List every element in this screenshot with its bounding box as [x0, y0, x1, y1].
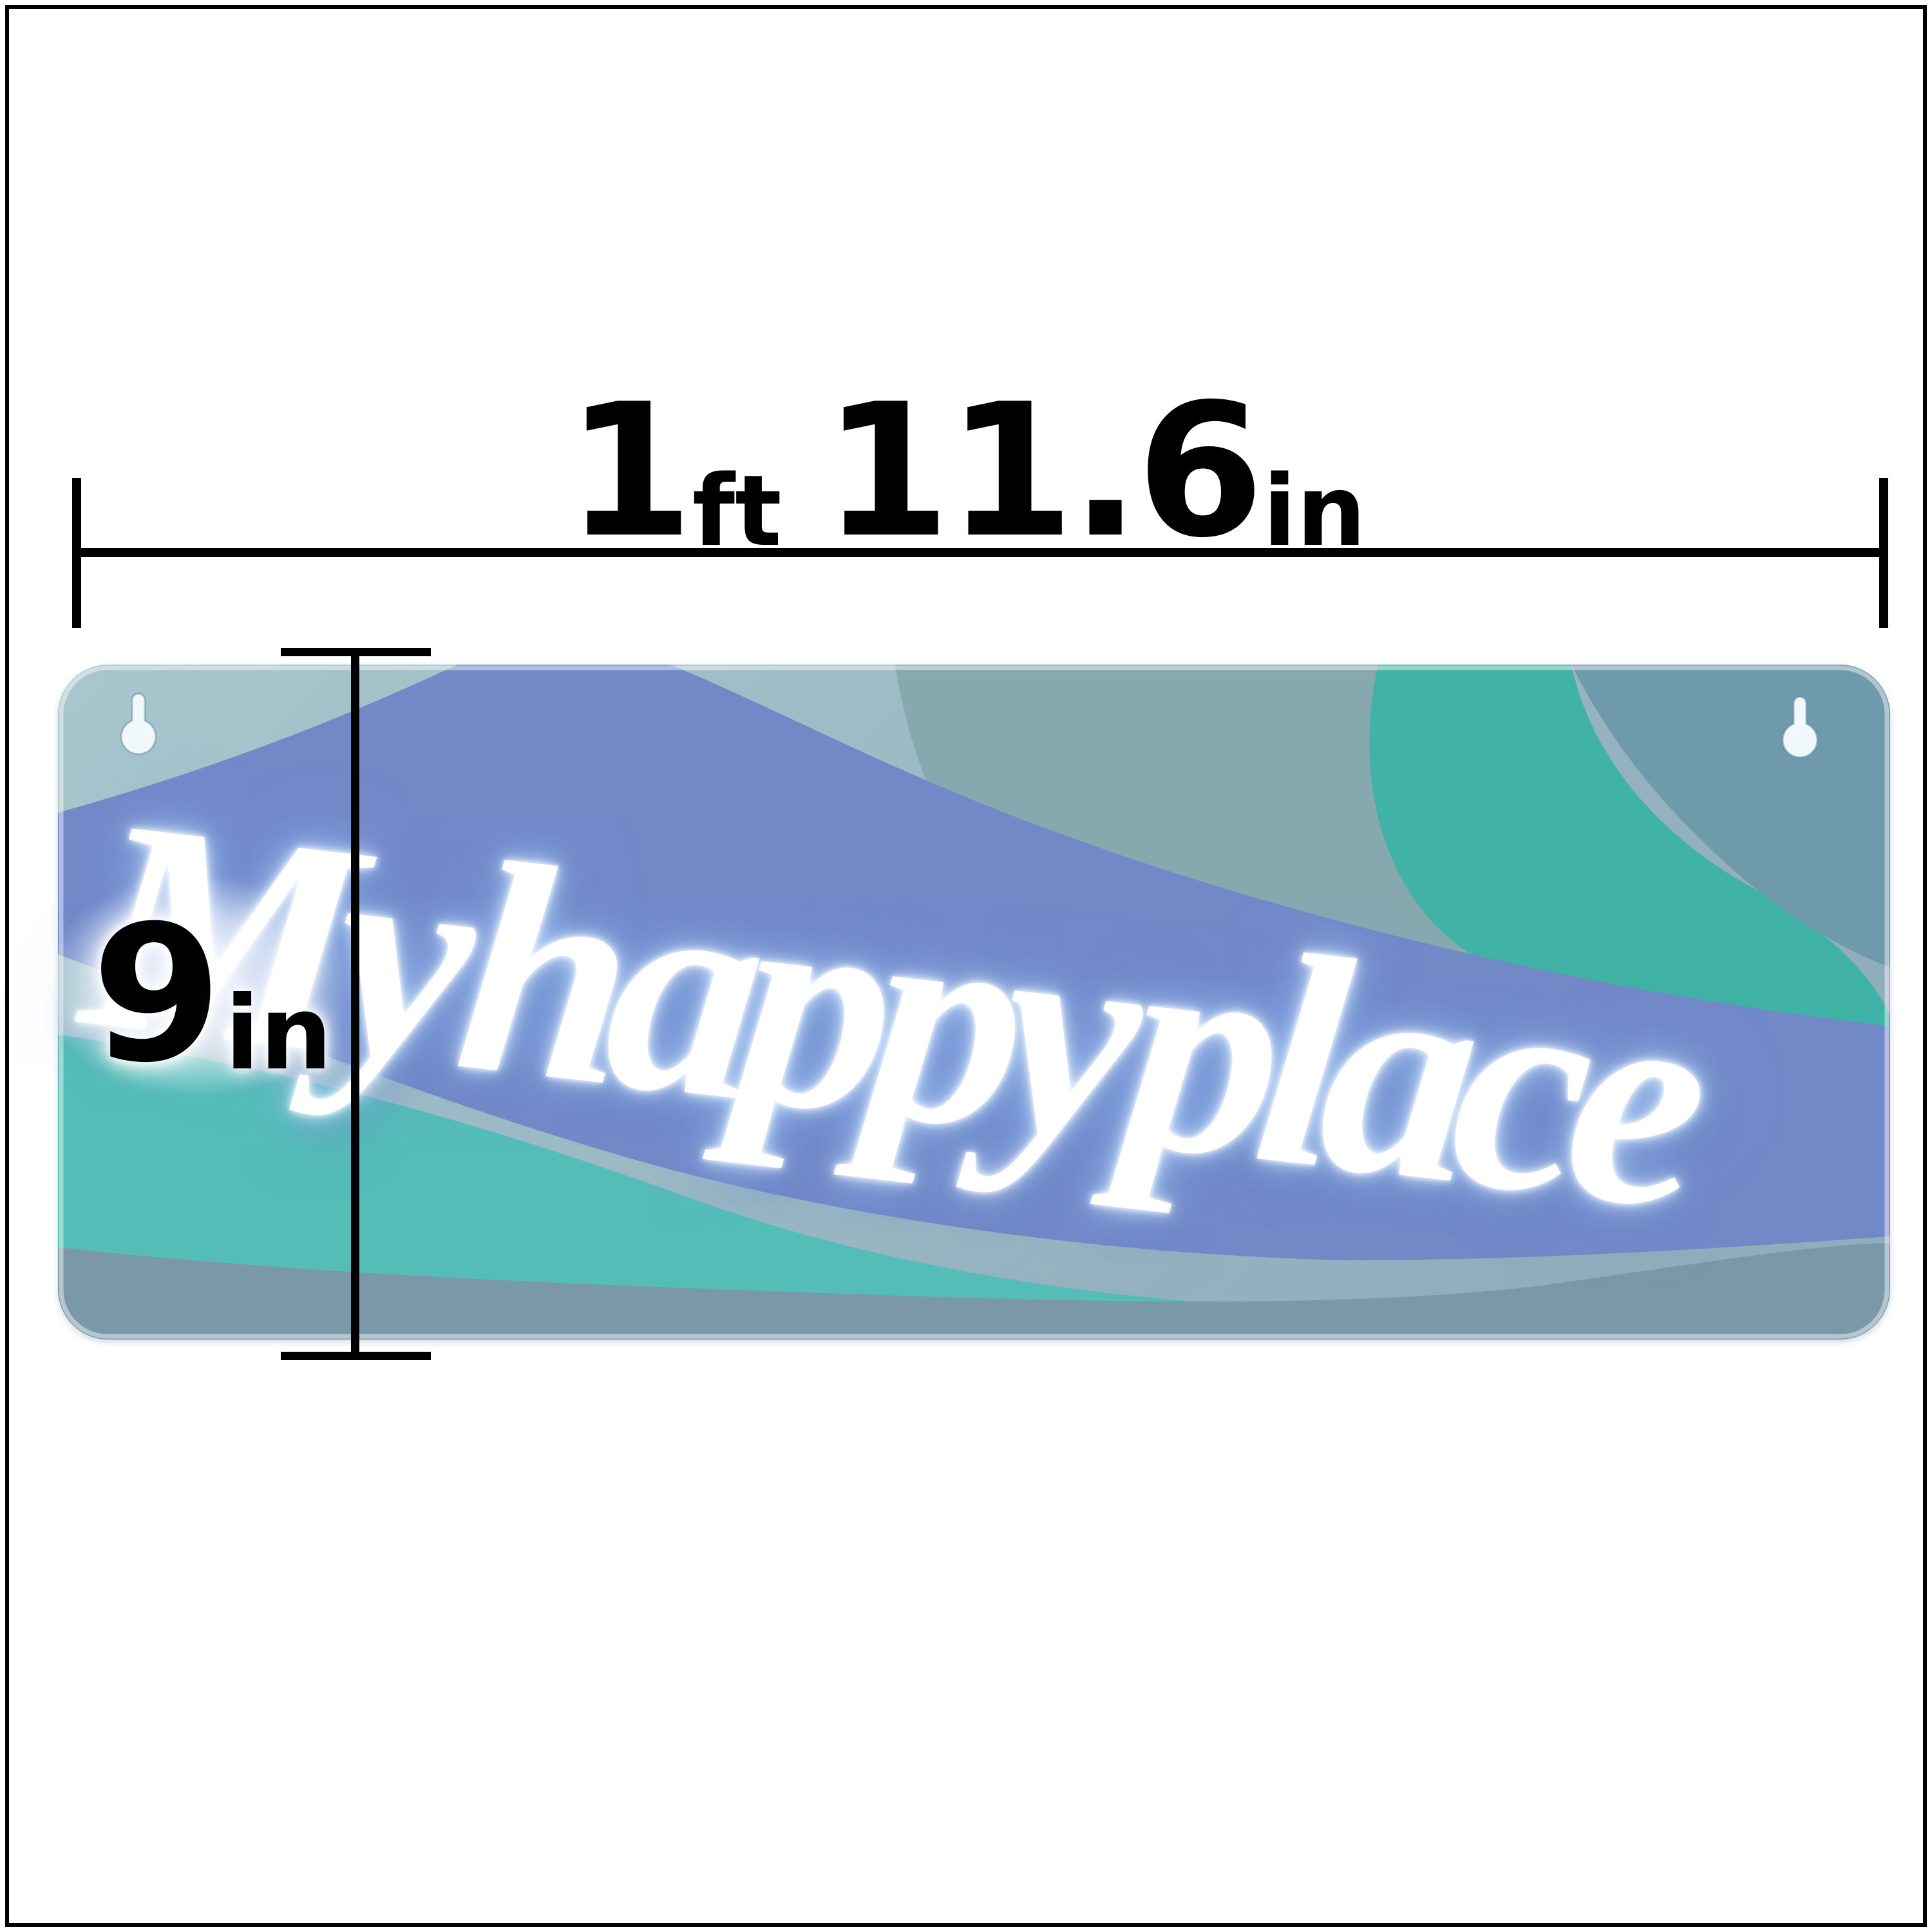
width-feet-unit: ft [692, 462, 782, 560]
height-dimension-label: 9 in [91, 900, 332, 1068]
height-value: 9 [91, 900, 218, 1088]
width-dimension-endcap-right [1879, 478, 1888, 628]
width-dimension-label: 1 ft 11.6 in [0, 380, 1932, 567]
height-dimension-line [351, 648, 359, 1360]
height-unit: in [225, 983, 332, 1084]
height-dimension-endcap-bottom [281, 1352, 431, 1360]
width-dimension-line [72, 548, 1888, 557]
width-inches-value: 11.6 [823, 380, 1260, 563]
width-dimension-endcap-left [72, 478, 81, 628]
product-dimension-image: 1 ft 11.6 in [0, 0, 1932, 1932]
height-dimension-endcap-top [281, 648, 431, 656]
width-inches-unit: in [1263, 462, 1366, 560]
width-feet-value: 1 [566, 380, 690, 563]
